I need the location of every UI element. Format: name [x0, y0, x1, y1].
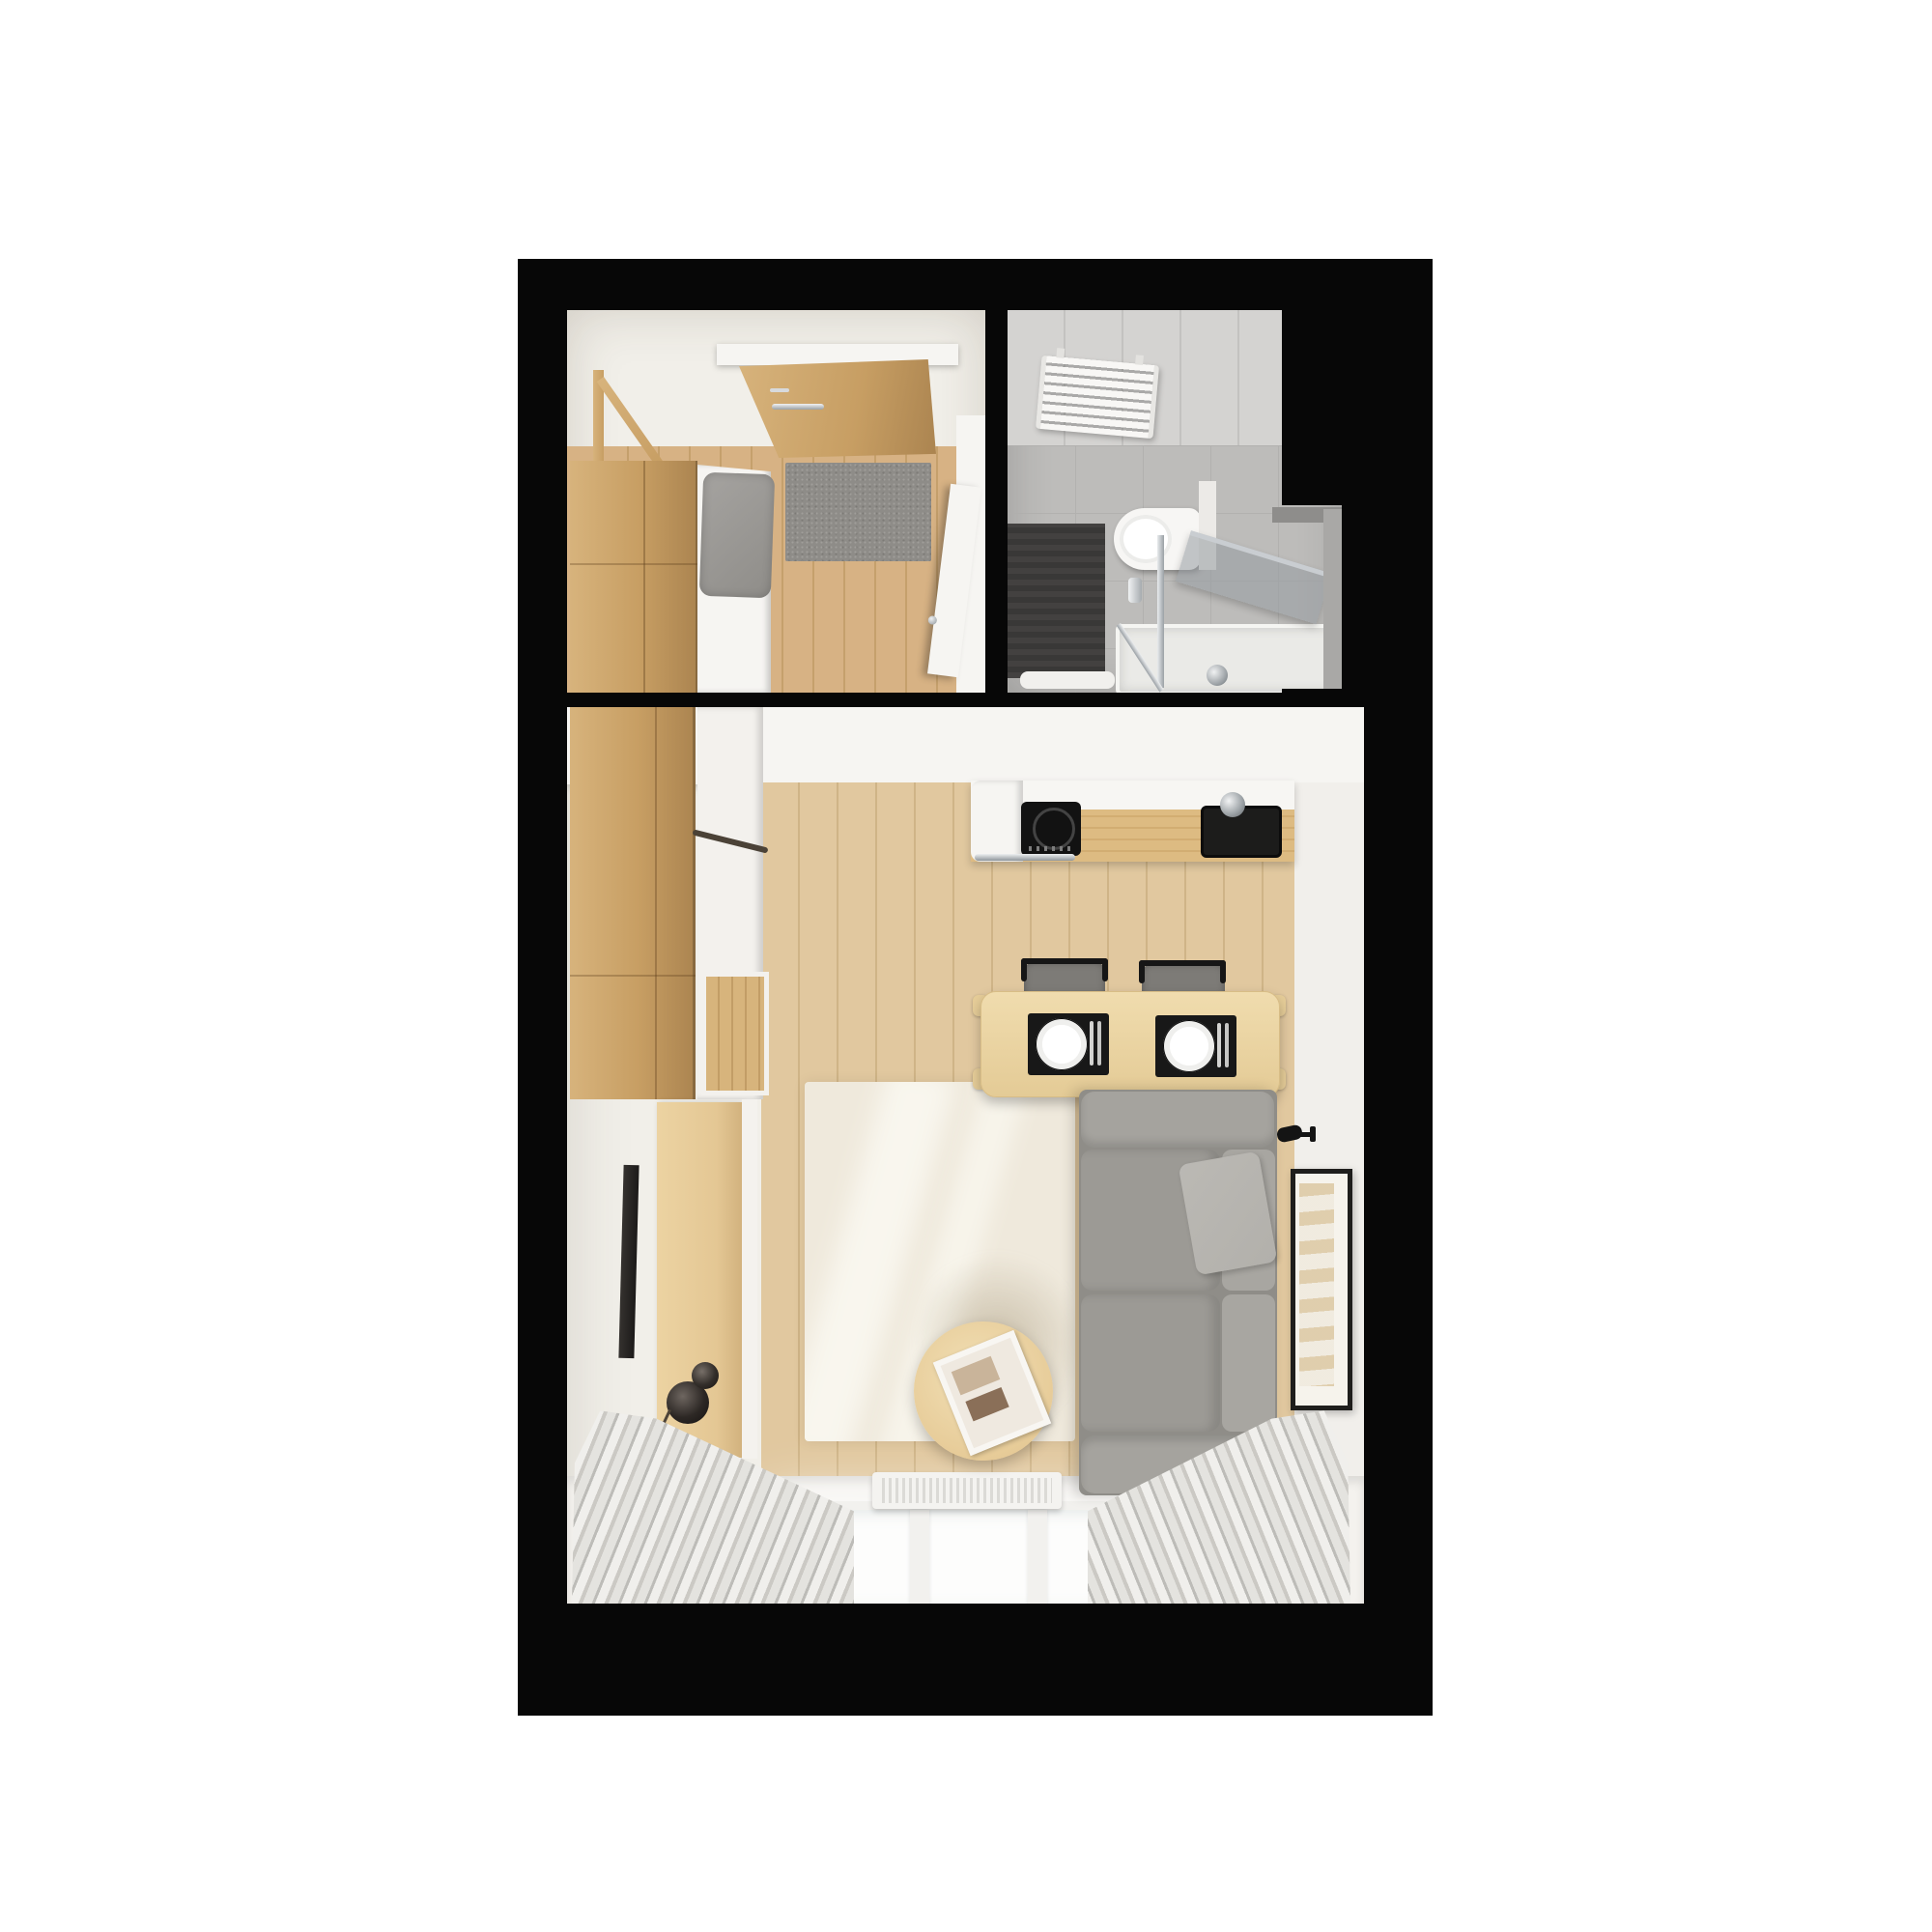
wardrobe-door-seam — [655, 707, 657, 1099]
entry-door-leaf — [737, 359, 936, 458]
placemat — [1155, 1015, 1236, 1077]
chair-frame — [1021, 958, 1027, 981]
render-canvas — [0, 0, 1932, 1932]
lamp-head — [1276, 1123, 1304, 1143]
cutlery-icon — [1097, 1021, 1101, 1065]
serving-tray — [933, 1330, 1051, 1456]
wardrobe-door-seam — [570, 563, 697, 565]
wall-mounted-tv — [618, 1165, 639, 1358]
induction-cooktop — [1021, 802, 1081, 856]
shower-tray — [1116, 624, 1342, 693]
shower-door-handle — [1128, 578, 1142, 603]
decor-vase — [692, 1362, 719, 1389]
entry-door-mat — [785, 463, 931, 561]
white-bath-mat — [1020, 671, 1115, 689]
picture-frame — [1291, 1169, 1352, 1410]
room-hallway — [567, 310, 985, 693]
room-living-kitchen — [567, 707, 1364, 1604]
wall-section — [1282, 689, 1342, 693]
sofa-armrest — [1081, 1092, 1274, 1148]
kitchen-counter — [971, 781, 1294, 862]
shower-drain — [1207, 665, 1228, 686]
cooktop-controls — [1029, 846, 1073, 851]
sofa-back-cushion — [1222, 1294, 1275, 1432]
coffee-table — [914, 1321, 1053, 1461]
lamp-base — [1310, 1126, 1316, 1142]
oven-handle — [975, 854, 1075, 861]
window-mullion — [1028, 1510, 1047, 1604]
wall-lamp — [1277, 1119, 1318, 1155]
wall-section — [1282, 310, 1342, 505]
sofa-seat-cushion — [1081, 1294, 1220, 1432]
plate — [1163, 1020, 1215, 1072]
wardrobe-door-seam — [643, 461, 645, 693]
apartment-walls — [518, 259, 1433, 1716]
chair-frame — [1102, 958, 1108, 981]
open-shelf-niche — [701, 972, 769, 1095]
picture-art — [1299, 1183, 1334, 1386]
radiator-fins — [882, 1478, 1052, 1503]
hallway-wardrobe — [570, 461, 697, 693]
wardrobe-door-seam — [570, 975, 696, 977]
radiator-mount — [1056, 348, 1065, 358]
shower-nook-side-wall — [1323, 509, 1342, 689]
hallway-bench-cushion — [699, 472, 775, 599]
radiator — [872, 1472, 1062, 1509]
plate — [1036, 1018, 1088, 1070]
cooktop-burner-ring — [1033, 808, 1075, 850]
cutlery-icon — [1217, 1023, 1221, 1067]
chair-frame — [1021, 958, 1108, 964]
room-bathroom — [1008, 310, 1342, 693]
faucet — [1220, 792, 1245, 817]
cutlery-icon — [1225, 1023, 1229, 1067]
tall-wardrobe — [570, 707, 696, 1099]
tv-bench-edge — [742, 1099, 757, 1459]
bar-table — [980, 991, 1280, 1097]
shower-glass-rail — [1157, 535, 1164, 688]
chair-frame — [1220, 960, 1226, 983]
cutlery-icon — [1090, 1021, 1094, 1065]
entry-door-lock — [770, 388, 789, 392]
radiator-mount — [1135, 355, 1144, 365]
bathroom-door-handle — [927, 615, 937, 625]
dark-bath-mat — [1008, 524, 1105, 678]
entry-door-handle — [772, 404, 824, 410]
counter-end-panel — [971, 781, 1023, 862]
tray-item — [965, 1387, 1009, 1421]
placemat — [1028, 1013, 1109, 1075]
chair-frame — [1139, 960, 1226, 966]
towel-radiator — [1036, 355, 1159, 439]
chair-frame — [1139, 960, 1145, 983]
window-mullion — [910, 1510, 929, 1604]
